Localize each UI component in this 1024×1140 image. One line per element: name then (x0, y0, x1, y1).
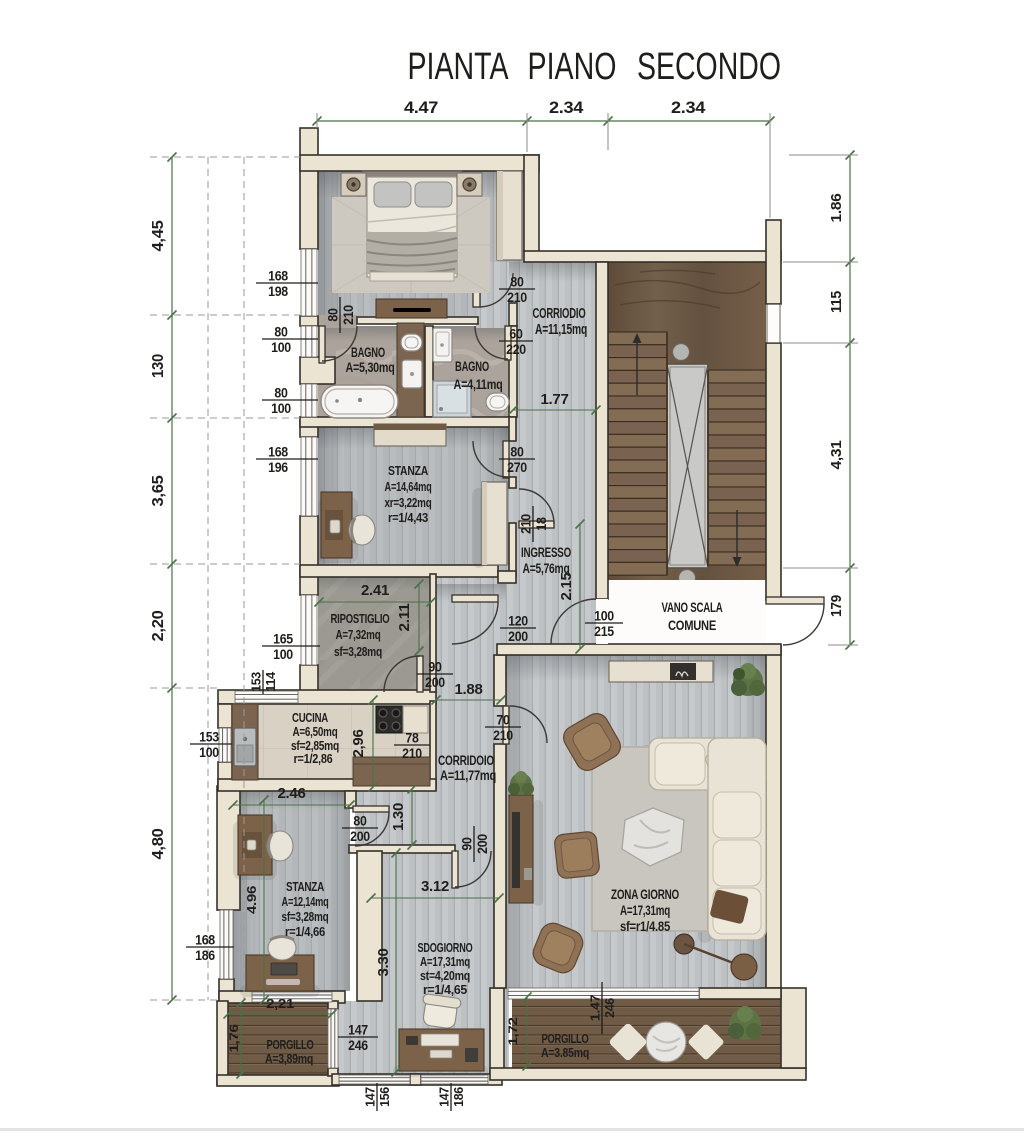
svg-text:210: 210 (402, 746, 422, 761)
svg-text:90: 90 (460, 837, 475, 850)
svg-text:200: 200 (350, 829, 370, 844)
svg-text:215: 215 (594, 624, 615, 639)
svg-text:A=12,14mq: A=12,14mq (282, 894, 329, 909)
svg-text:147: 147 (438, 1087, 452, 1107)
svg-text:90: 90 (428, 660, 441, 675)
svg-text:A=17,31mq: A=17,31mq (620, 903, 670, 918)
svg-text:r=1/4,66: r=1/4,66 (285, 924, 325, 939)
svg-text:210: 210 (493, 728, 513, 743)
svg-text:210: 210 (341, 305, 356, 325)
svg-text:2.34: 2.34 (671, 98, 706, 117)
svg-text:r=1/4,65: r=1/4,65 (423, 982, 467, 997)
svg-text:2.41: 2.41 (361, 582, 389, 599)
svg-text:153: 153 (250, 672, 264, 692)
svg-text:2,96: 2,96 (350, 730, 367, 758)
svg-text:CORRIDOIO: CORRIDOIO (438, 753, 494, 768)
svg-text:1.86: 1.86 (828, 194, 845, 223)
svg-text:100: 100 (271, 401, 291, 416)
svg-text:80: 80 (510, 275, 523, 290)
svg-text:1.30: 1.30 (390, 803, 407, 831)
svg-text:INGRESSO: INGRESSO (521, 545, 571, 560)
svg-text:80: 80 (326, 308, 341, 321)
svg-text:A=5,30mq: A=5,30mq (346, 360, 395, 375)
svg-text:100: 100 (271, 340, 291, 355)
svg-text:3.30: 3.30 (375, 949, 392, 977)
svg-text:A=11,77mq: A=11,77mq (440, 768, 496, 783)
svg-text:200: 200 (508, 629, 528, 644)
svg-text:147: 147 (348, 1023, 368, 1038)
svg-text:r=1/4,43: r=1/4,43 (388, 510, 428, 525)
svg-text:A=3.85mq: A=3.85mq (541, 1046, 589, 1060)
svg-text:1.47: 1.47 (589, 994, 603, 1021)
svg-text:A=17,31mq: A=17,31mq (420, 954, 470, 969)
svg-text:A=11,15mq: A=11,15mq (535, 322, 587, 338)
svg-text:A=4,11mq: A=4,11mq (454, 377, 503, 392)
svg-text:80: 80 (274, 325, 287, 340)
svg-text:196: 196 (268, 460, 289, 475)
svg-text:2.34: 2.34 (549, 98, 584, 117)
svg-text:BAGNO: BAGNO (351, 345, 385, 360)
svg-text:198: 198 (268, 284, 289, 299)
svg-text:100: 100 (199, 745, 219, 760)
svg-text:80: 80 (510, 445, 523, 460)
svg-text:1.77: 1.77 (541, 391, 569, 408)
svg-text:ZONA GIORNO: ZONA GIORNO (611, 887, 679, 902)
svg-text:A=3,89mq: A=3,89mq (265, 1052, 313, 1066)
svg-text:70: 70 (496, 713, 509, 728)
svg-text:BAGNO: BAGNO (455, 359, 489, 374)
svg-text:VANO SCALA: VANO SCALA (662, 600, 723, 615)
svg-text:SDOGIORNO: SDOGIORNO (418, 940, 473, 955)
svg-text:186: 186 (452, 1087, 466, 1107)
svg-text:60: 60 (509, 327, 522, 342)
svg-text:168: 168 (268, 445, 289, 460)
svg-text:168: 168 (195, 933, 216, 948)
svg-text:PIANO: PIANO (528, 46, 617, 88)
svg-text:130: 130 (150, 354, 167, 378)
svg-text:210: 210 (507, 290, 527, 305)
svg-text:sf=3,28mq: sf=3,28mq (334, 644, 382, 659)
svg-text:sf=3,28mq: sf=3,28mq (282, 909, 329, 924)
svg-text:186: 186 (195, 948, 216, 963)
svg-text:1,72: 1,72 (506, 1017, 520, 1046)
svg-text:100: 100 (273, 647, 293, 662)
svg-text:A=7,32mq: A=7,32mq (336, 627, 381, 642)
svg-text:200: 200 (475, 834, 490, 854)
svg-text:78: 78 (405, 731, 419, 746)
svg-text:st=4,20mq: st=4,20mq (420, 968, 470, 983)
svg-text:STANZA: STANZA (388, 463, 429, 478)
svg-text:156: 156 (378, 1087, 392, 1107)
svg-text:246: 246 (603, 998, 617, 1018)
svg-text:PORGILLO: PORGILLO (542, 1032, 589, 1046)
svg-text:CUCINA: CUCINA (292, 710, 329, 725)
svg-text:PIANTA: PIANTA (408, 46, 509, 88)
svg-text:2.46: 2.46 (278, 785, 306, 802)
svg-text:xr=3,22mq: xr=3,22mq (385, 495, 432, 510)
svg-text:147: 147 (364, 1087, 378, 1107)
svg-text:4,31: 4,31 (828, 441, 845, 470)
svg-text:4.96: 4.96 (244, 886, 259, 914)
svg-text:4,45: 4,45 (150, 220, 167, 251)
svg-text:168: 168 (268, 269, 289, 284)
svg-text:PORGILLO: PORGILLO (267, 1038, 314, 1052)
svg-text:4,80: 4,80 (150, 828, 167, 859)
svg-text:sf=r1/4.85: sf=r1/4.85 (620, 919, 671, 934)
svg-text:100: 100 (594, 609, 614, 624)
svg-text:200: 200 (425, 675, 445, 690)
svg-text:120: 120 (508, 614, 528, 629)
svg-text:246: 246 (348, 1038, 369, 1053)
svg-text:153: 153 (199, 730, 220, 745)
svg-text:80: 80 (353, 814, 366, 829)
svg-text:2,20: 2,20 (150, 610, 167, 641)
svg-text:2.11: 2.11 (396, 604, 413, 632)
svg-text:1.88: 1.88 (455, 681, 483, 698)
svg-text:RIPOSTIGLIO: RIPOSTIGLIO (331, 611, 390, 626)
svg-text:2.15: 2.15 (558, 573, 575, 601)
svg-text:3,65: 3,65 (150, 475, 167, 506)
svg-text:3.12: 3.12 (421, 878, 449, 895)
svg-text:STANZA: STANZA (286, 879, 325, 894)
svg-text:18: 18 (534, 517, 549, 531)
svg-text:CORRIODIO: CORRIODIO (533, 306, 586, 322)
svg-text:SECONDO: SECONDO (637, 46, 781, 88)
svg-text:4.47: 4.47 (404, 98, 438, 117)
svg-text:1,76: 1,76 (227, 1024, 241, 1053)
svg-text:179: 179 (828, 595, 845, 617)
svg-text:A=14,64mq: A=14,64mq (385, 479, 432, 494)
svg-text:270: 270 (507, 460, 527, 475)
svg-text:220: 220 (506, 342, 526, 357)
svg-text:80: 80 (274, 386, 287, 401)
svg-text:114: 114 (264, 672, 278, 692)
svg-text:A=6,50mq: A=6,50mq (293, 724, 338, 739)
svg-text:2,21: 2,21 (266, 996, 294, 1011)
svg-text:COMUNE: COMUNE (668, 618, 716, 633)
svg-text:165: 165 (273, 632, 294, 647)
svg-text:r=1/2,86: r=1/2,86 (294, 751, 333, 766)
svg-text:115: 115 (828, 291, 845, 313)
svg-text:210: 210 (519, 514, 534, 534)
